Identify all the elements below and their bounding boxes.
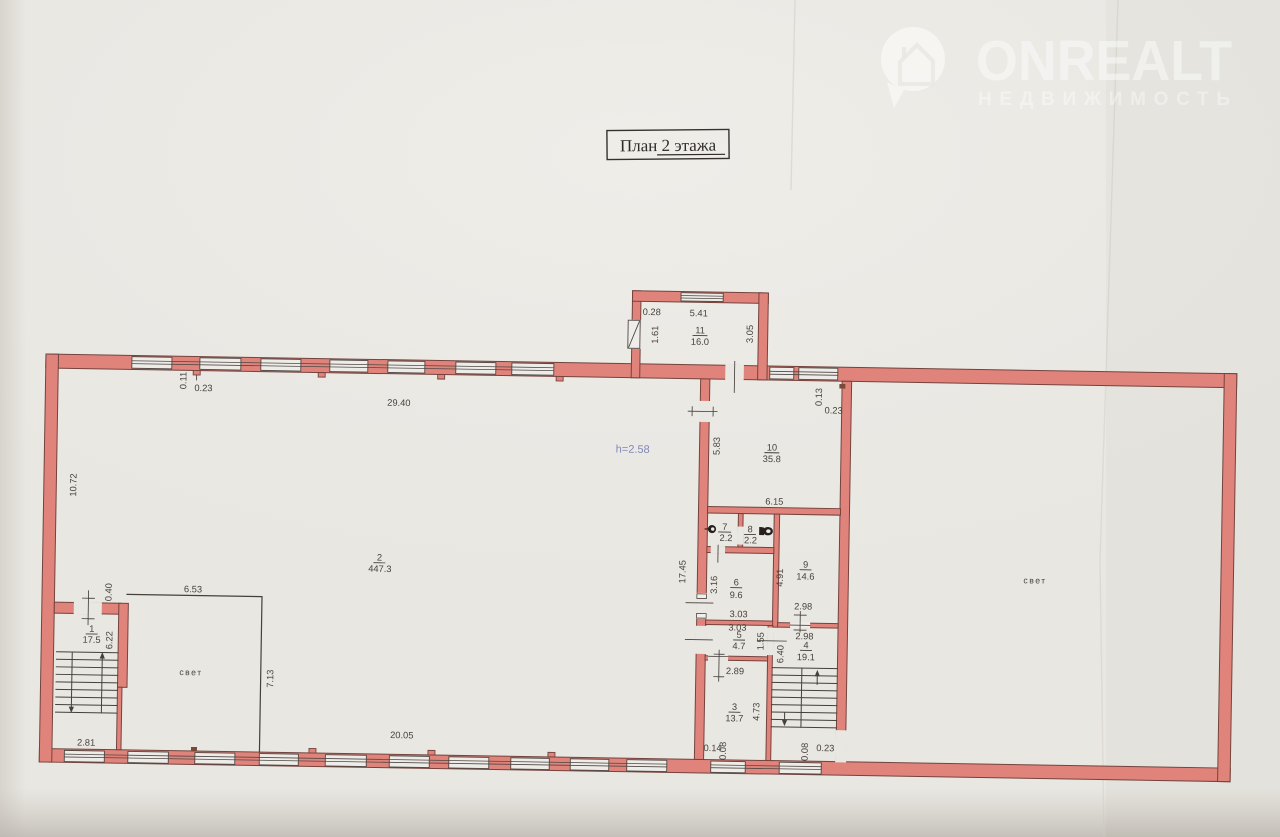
svg-text:0.23: 0.23 [825,405,843,415]
svg-text:3.16: 3.16 [709,576,719,594]
svg-text:0.11: 0.11 [178,372,188,390]
svg-text:8: 8 [747,524,752,534]
svg-text:1.61: 1.61 [650,326,660,344]
svg-text:2.98: 2.98 [794,601,812,611]
svg-text:14.6: 14.6 [796,571,814,581]
svg-text:2.2: 2.2 [744,535,757,545]
svg-text:0.28: 0.28 [643,307,661,317]
svg-text:4.91: 4.91 [775,569,785,587]
svg-text:h=2.58: h=2.58 [616,443,650,456]
svg-text:10.72: 10.72 [68,473,78,496]
svg-text:17.45: 17.45 [677,560,687,583]
svg-text:19.1: 19.1 [797,652,815,662]
svg-text:0.23: 0.23 [194,383,212,393]
svg-text:0.08: 0.08 [718,742,728,760]
svg-text:4.7: 4.7 [732,641,745,651]
svg-text:План 2 этажа: План 2 этажа [620,136,717,156]
svg-text:5.41: 5.41 [690,308,708,318]
svg-text:447.3: 447.3 [368,564,391,574]
svg-text:3: 3 [732,702,737,712]
svg-text:0.13: 0.13 [814,388,824,406]
svg-text:2: 2 [377,553,382,563]
svg-text:6.15: 6.15 [765,496,783,506]
svg-text:7.13: 7.13 [265,670,275,688]
svg-text:2.81: 2.81 [77,737,95,747]
svg-text:0.23: 0.23 [816,743,834,753]
svg-text:2.89: 2.89 [726,666,744,676]
svg-text:4: 4 [803,640,808,650]
svg-text:2.2: 2.2 [719,533,732,543]
svg-text:17.5: 17.5 [82,635,100,645]
svg-text:6.53: 6.53 [184,584,202,594]
svg-text:9: 9 [803,560,808,570]
svg-text:13.7: 13.7 [725,713,743,723]
svg-text:6: 6 [734,577,739,587]
svg-text:1.55: 1.55 [755,632,765,650]
svg-text:4.73: 4.73 [751,703,761,721]
svg-text:0.08: 0.08 [800,743,810,761]
svg-text:29.40: 29.40 [387,398,410,408]
svg-text:11: 11 [695,325,705,335]
svg-text:7: 7 [722,522,727,532]
svg-text:0.40: 0.40 [104,583,114,601]
svg-text:3.05: 3.05 [745,325,755,343]
svg-text:ONREALT: ONREALT [976,29,1232,93]
svg-text:5.83: 5.83 [712,437,722,455]
svg-text:5: 5 [736,630,741,640]
svg-text:6.22: 6.22 [104,631,114,649]
svg-text:свет: свет [179,667,202,677]
svg-text:10: 10 [767,442,778,452]
svg-text:свет: свет [1023,575,1046,585]
svg-text:6.40: 6.40 [775,645,785,663]
svg-text:1: 1 [89,624,94,634]
svg-text:9.6: 9.6 [730,590,743,600]
svg-text:35.8: 35.8 [763,454,781,464]
svg-text:16.0: 16.0 [691,337,709,347]
svg-text:20.05: 20.05 [390,730,413,740]
svg-text:3.03: 3.03 [729,609,747,619]
